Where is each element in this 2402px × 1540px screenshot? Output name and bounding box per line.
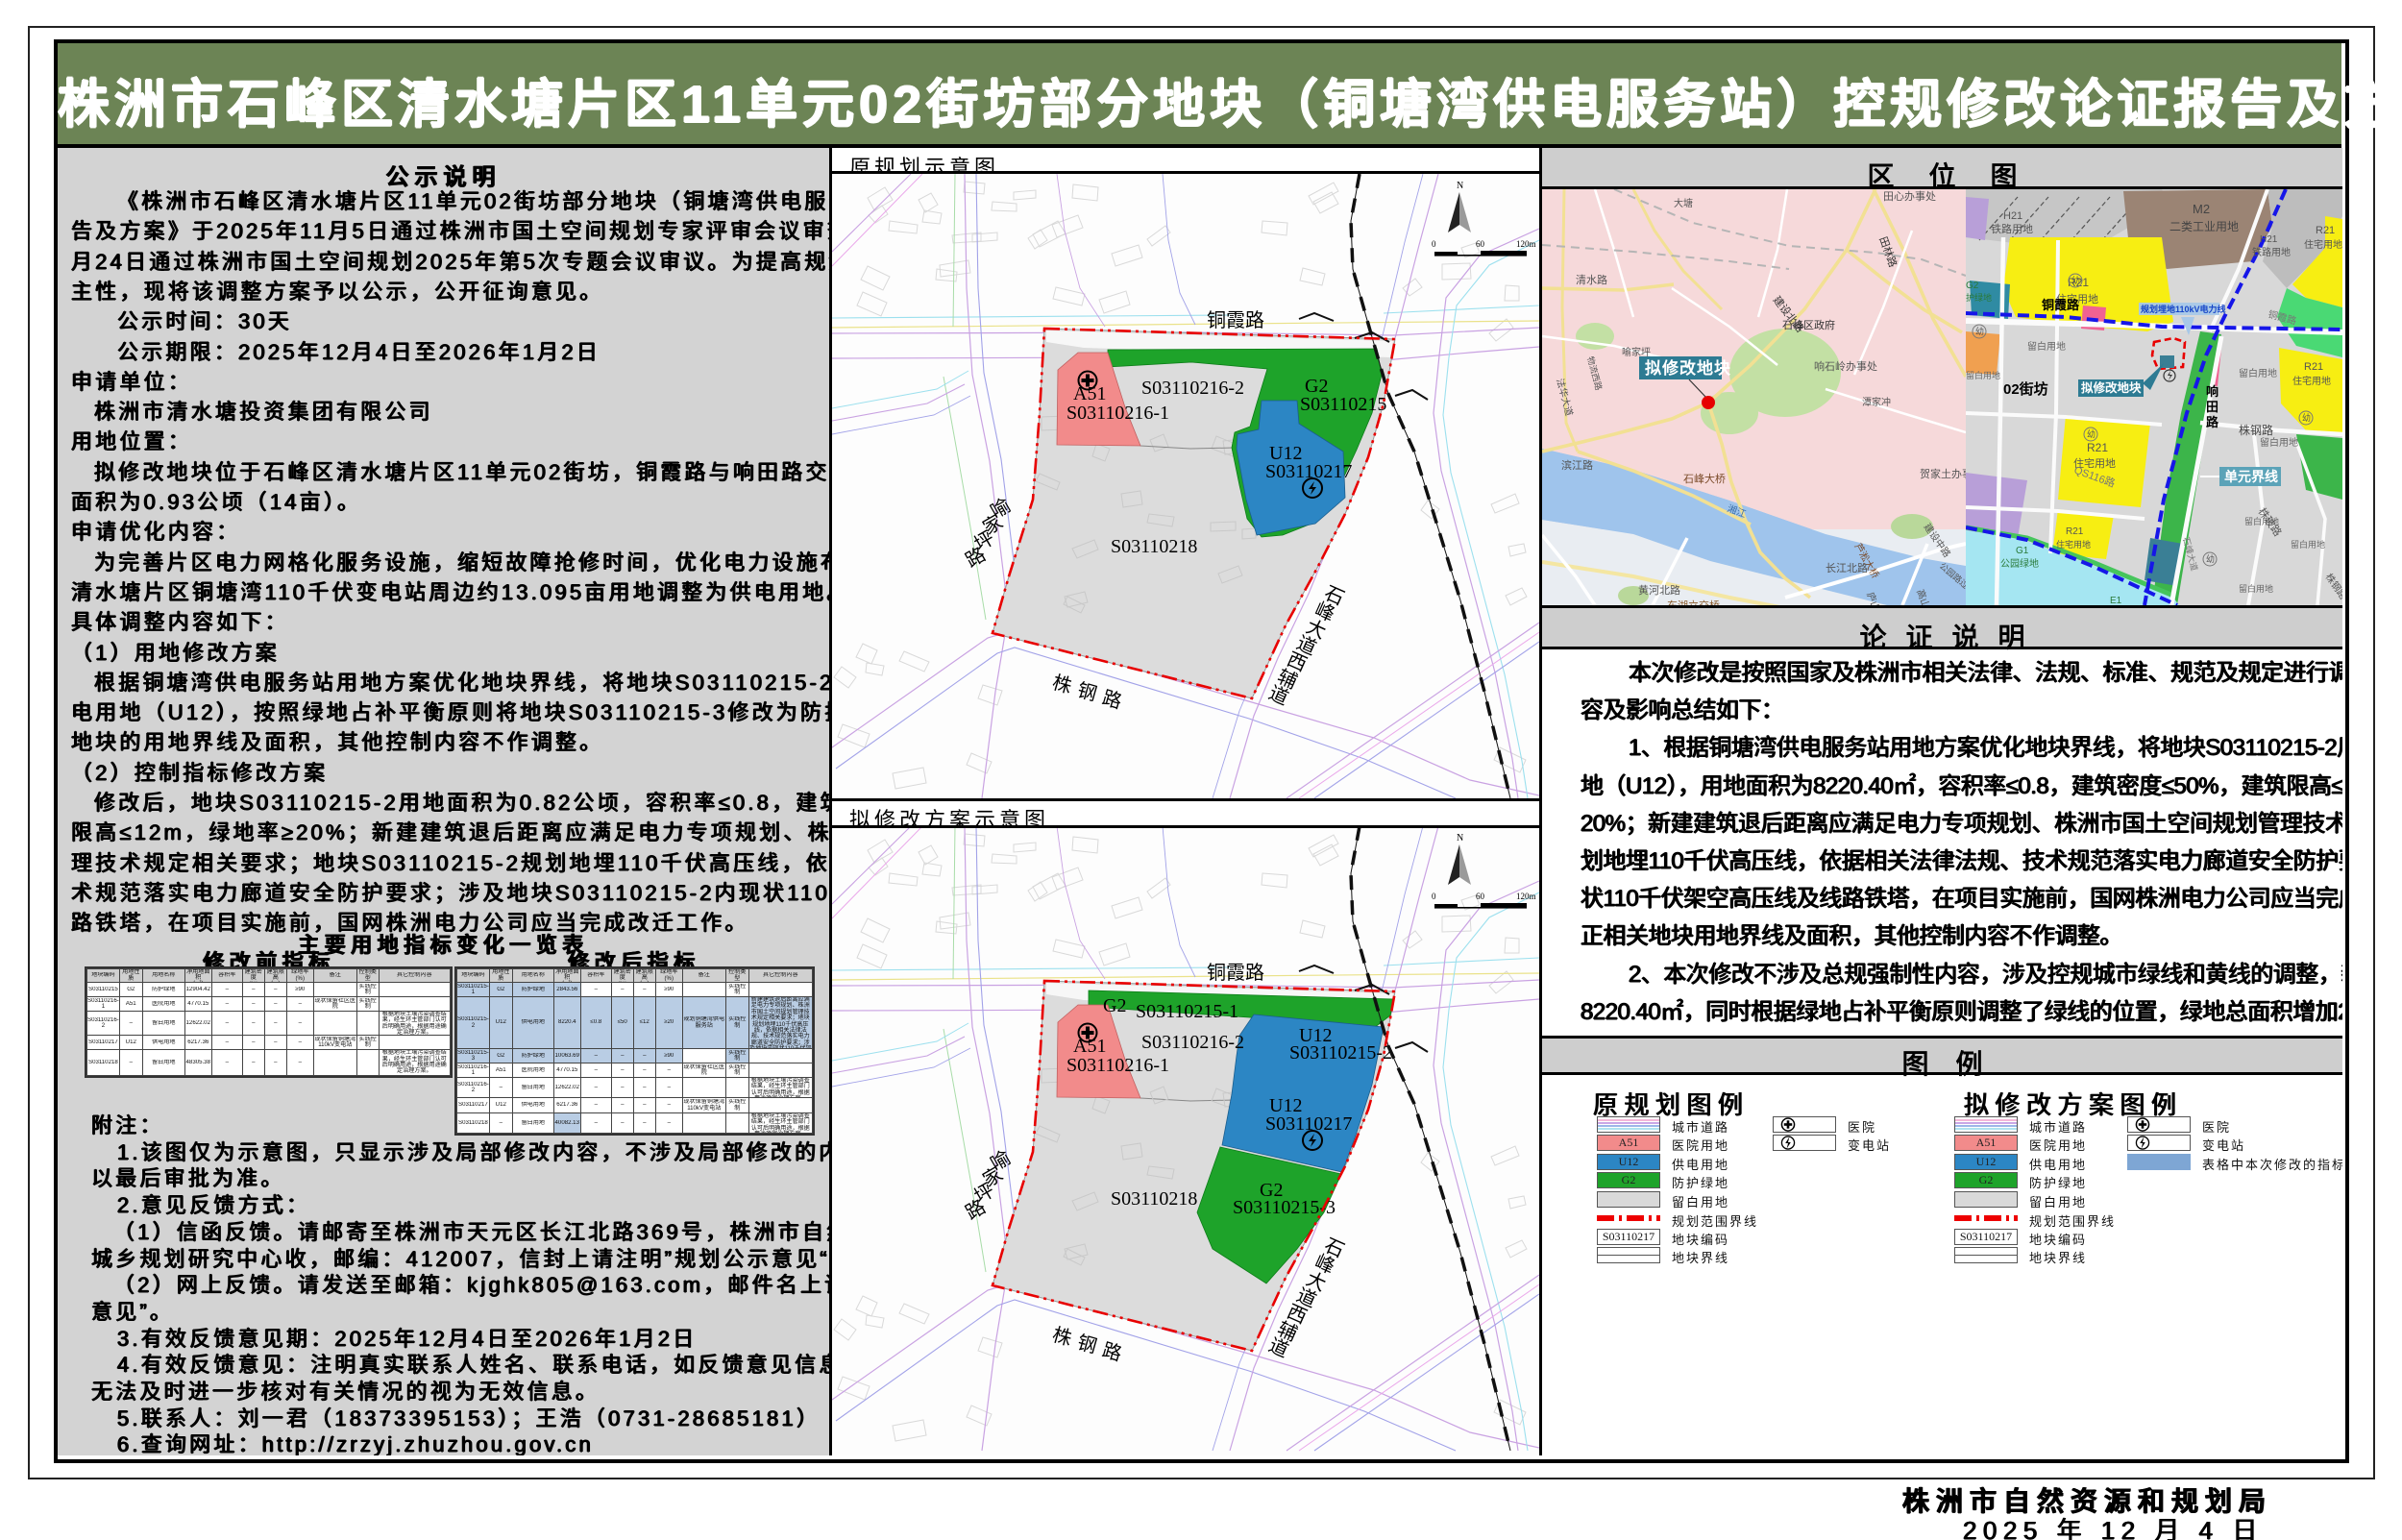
svg-text:幼: 幼 bbox=[2206, 553, 2215, 564]
svg-text:G2: G2 bbox=[1103, 995, 1126, 1016]
svg-text:响石岭办事处: 响石岭办事处 bbox=[1814, 359, 1877, 373]
svg-text:住宅用地: 住宅用地 bbox=[2304, 238, 2342, 251]
svg-text:长江北路: 长江北路 bbox=[1826, 562, 1868, 574]
svg-text:H21: H21 bbox=[2003, 210, 2022, 222]
svg-text:幼: 幼 bbox=[1975, 326, 1984, 336]
svg-text:住宅用地: 住宅用地 bbox=[2292, 375, 2331, 387]
svg-text:公园绿地: 公园绿地 bbox=[2000, 557, 2039, 570]
svg-text:黄河北路: 黄河北路 bbox=[1638, 583, 1680, 597]
svg-text:留白用地: 留白用地 bbox=[2291, 539, 2325, 550]
svg-text:铁路用地: 铁路用地 bbox=[1991, 223, 2033, 235]
svg-text:02街坊: 02街坊 bbox=[2003, 380, 2048, 398]
svg-text:株钢路: 株钢路 bbox=[2239, 423, 2273, 437]
svg-text:石峰大桥: 石峰大桥 bbox=[1683, 472, 1726, 485]
svg-text:R21: R21 bbox=[2304, 361, 2323, 373]
svg-text:路: 路 bbox=[2206, 415, 2219, 429]
svg-text:S03110216-2: S03110216-2 bbox=[1141, 1032, 1244, 1053]
svg-text:铁路用地: 铁路用地 bbox=[2252, 246, 2291, 258]
svg-text:S03110215: S03110215 bbox=[1300, 394, 1386, 415]
svg-text:幼: 幼 bbox=[2071, 275, 2080, 285]
svg-text:滨江路: 滨江路 bbox=[1561, 458, 1593, 472]
svg-text:铜霞路: 铜霞路 bbox=[2041, 298, 2080, 312]
svg-text:田: 田 bbox=[2206, 400, 2218, 414]
svg-text:留白用地: 留白用地 bbox=[2239, 583, 2273, 594]
svg-text:M2: M2 bbox=[2193, 202, 2210, 216]
svg-text:田心办事处: 田心办事处 bbox=[1883, 190, 1936, 203]
svg-text:留白用地: 留白用地 bbox=[2239, 367, 2277, 379]
svg-text:拟修改地块: 拟修改地块 bbox=[2081, 380, 2142, 395]
svg-text:A51: A51 bbox=[1073, 383, 1106, 404]
svg-text:留白用地: 留白用地 bbox=[2260, 436, 2298, 449]
svg-text:R21: R21 bbox=[2316, 225, 2335, 236]
svg-text:S03110217: S03110217 bbox=[1265, 1113, 1352, 1135]
svg-text:清水路: 清水路 bbox=[1576, 274, 1607, 286]
svg-text:E1: E1 bbox=[2110, 596, 2122, 605]
svg-text:S03110216-2: S03110216-2 bbox=[1141, 378, 1244, 399]
svg-text:R21: R21 bbox=[2066, 526, 2084, 537]
svg-text:R21: R21 bbox=[2087, 441, 2108, 454]
svg-text:大塘: 大塘 bbox=[1674, 197, 1693, 209]
svg-text:S03110215-1: S03110215-1 bbox=[1136, 1001, 1238, 1022]
svg-text:护绿地: 护绿地 bbox=[1966, 292, 1992, 303]
svg-text:A51: A51 bbox=[1073, 1036, 1106, 1057]
svg-text:S03110215-2: S03110215-2 bbox=[1289, 1042, 1392, 1063]
svg-text:S03110216-1: S03110216-1 bbox=[1066, 1055, 1169, 1076]
svg-text:响: 响 bbox=[2206, 384, 2218, 399]
svg-text:贺家土办事处: 贺家土办事处 bbox=[1920, 467, 1966, 480]
svg-text:单元界线: 单元界线 bbox=[2224, 469, 2278, 484]
svg-text:S03110218: S03110218 bbox=[1111, 1188, 1197, 1210]
svg-text:潭家冲: 潭家冲 bbox=[1862, 396, 1891, 408]
svg-text:S03110218: S03110218 bbox=[1111, 536, 1197, 557]
svg-text:S03110215-3: S03110215-3 bbox=[1233, 1197, 1336, 1218]
svg-text:G2: G2 bbox=[1966, 281, 1979, 291]
svg-text:留白用地: 留白用地 bbox=[2027, 340, 2066, 353]
svg-text:二类工业用地: 二类工业用地 bbox=[2169, 220, 2239, 233]
svg-text:H21: H21 bbox=[2260, 234, 2278, 245]
svg-text:住宅用地: 住宅用地 bbox=[2056, 539, 2091, 550]
svg-text:东湖立交桥: 东湖立交桥 bbox=[1667, 599, 1720, 605]
svg-text:留白用地: 留白用地 bbox=[1966, 370, 2000, 380]
svg-text:拟修改地块: 拟修改地块 bbox=[1645, 358, 1731, 378]
svg-text:S03110216-1: S03110216-1 bbox=[1066, 403, 1169, 424]
svg-text:幼: 幼 bbox=[2087, 428, 2096, 439]
svg-text:规划埋地110kV电力线: 规划埋地110kV电力线 bbox=[2141, 304, 2226, 314]
svg-text:G1: G1 bbox=[2016, 546, 2029, 556]
svg-text:幼: 幼 bbox=[2302, 412, 2311, 423]
svg-text:S03110217: S03110217 bbox=[1265, 461, 1352, 482]
